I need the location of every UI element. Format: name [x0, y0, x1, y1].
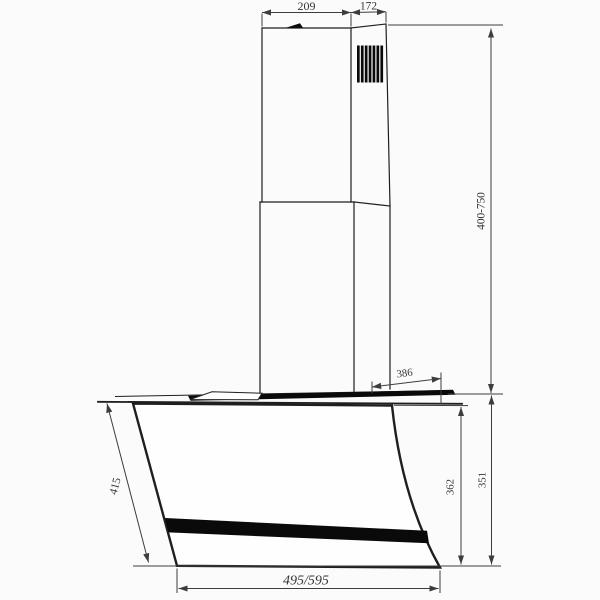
dim-label-overall-width: 495/595: [283, 574, 329, 589]
dim-label-chimney-width: 209: [298, 0, 316, 13]
mounting-bracket: [286, 23, 303, 28]
dim-label-chimney-depth: 172: [360, 1, 377, 13]
dim-label-top-depth: 386: [396, 367, 414, 381]
dim-chimney-depth: 172: [351, 1, 386, 23]
dim-label-body-height: 351: [477, 472, 489, 488]
hood-top-plate: [98, 390, 462, 404]
dim-chimney-height-range: 400-750: [388, 25, 503, 393]
dim-overall-width: 495/595: [177, 569, 440, 594]
dim-label-chimney-height-range: 400-750: [476, 192, 488, 230]
dim-top-depth: 386: [372, 367, 441, 404]
dim-chimney-width: 209: [262, 0, 351, 27]
hood-technical-drawing: 209 172 400-750 386 415 362 351: [0, 0, 600, 600]
dim-label-front-height: 362: [445, 479, 457, 495]
dim-label-glass-front-length: 415: [108, 476, 124, 496]
glass-front-panel: [133, 404, 440, 568]
vent-grille: [357, 46, 383, 83]
